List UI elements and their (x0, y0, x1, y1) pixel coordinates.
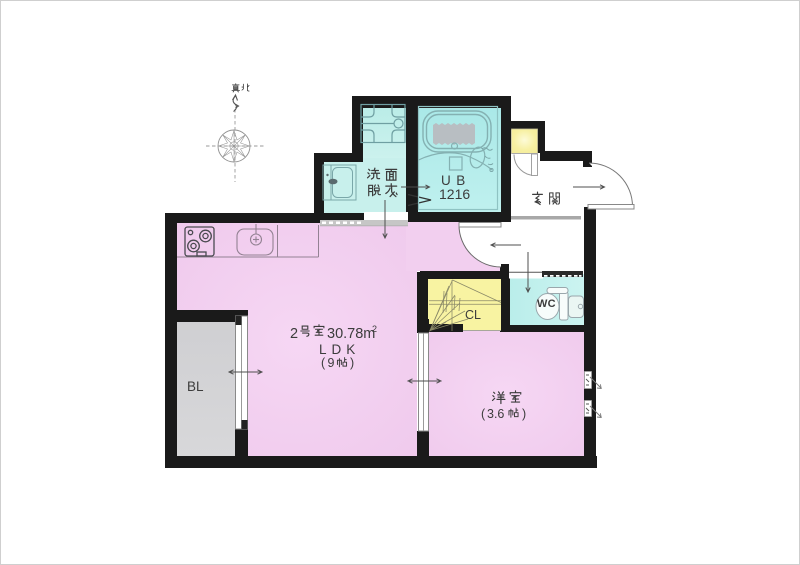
svg-text:): ) (350, 356, 354, 370)
svg-text:3.6: 3.6 (487, 407, 504, 421)
svg-text:1216: 1216 (439, 186, 470, 202)
svg-text:BL: BL (187, 379, 204, 394)
svg-text:2: 2 (372, 324, 377, 334)
svg-text:): ) (522, 407, 526, 421)
svg-text:2: 2 (290, 326, 298, 342)
svg-text:CL: CL (465, 308, 481, 322)
svg-text:WC: WC (537, 298, 556, 310)
svg-text:9: 9 (328, 356, 335, 370)
svg-text:30.78m: 30.78m (327, 326, 375, 342)
svg-text:LDK: LDK (319, 342, 360, 357)
